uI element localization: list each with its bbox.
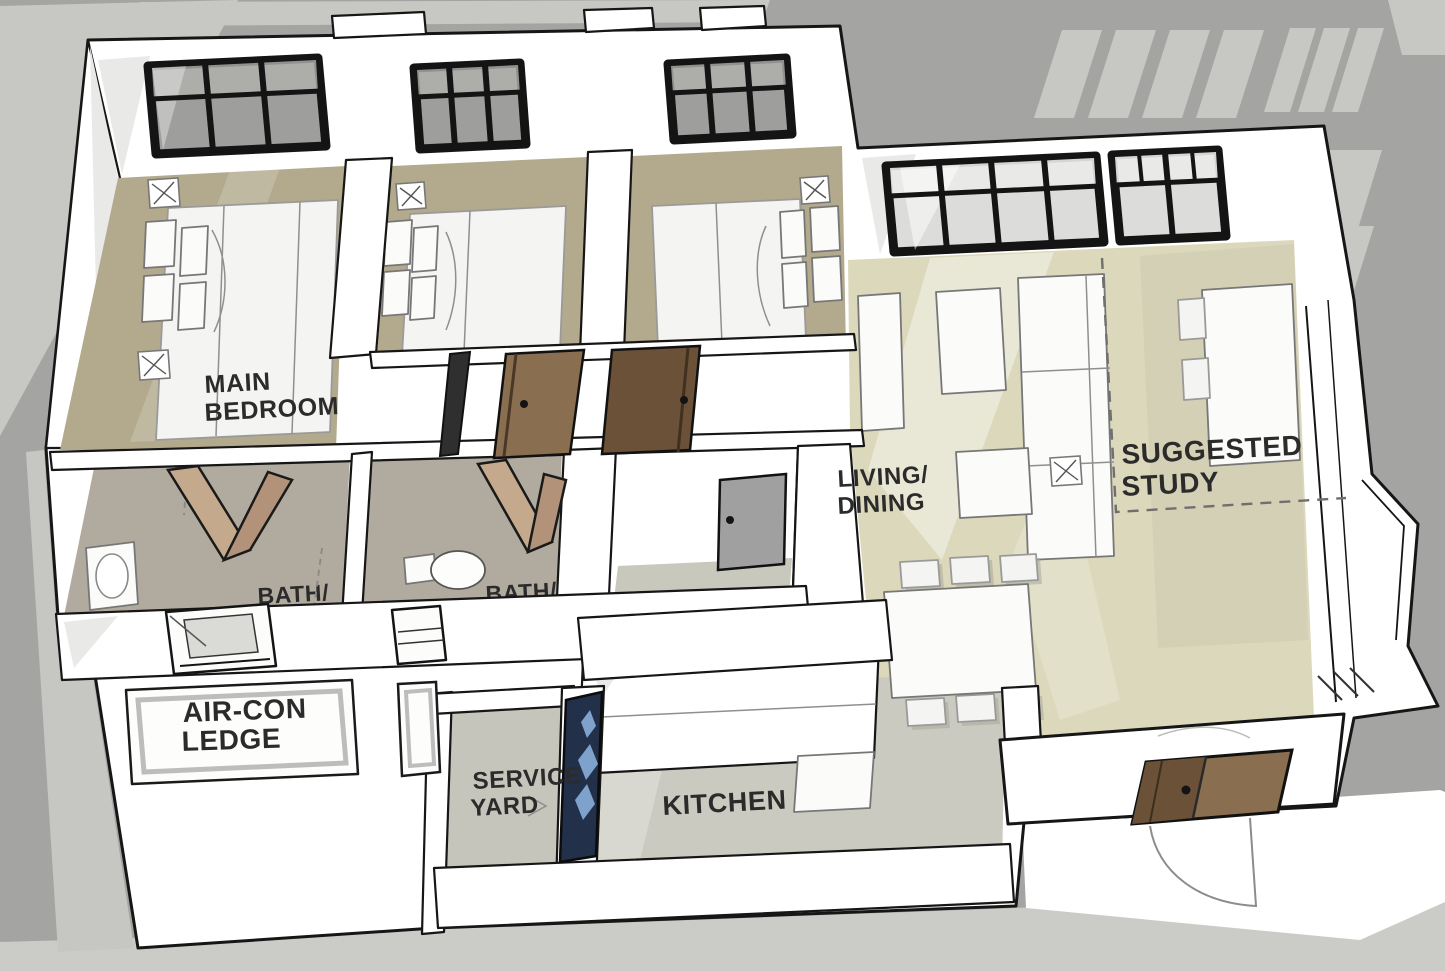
door-knob	[726, 516, 734, 524]
living-window-1	[886, 156, 1104, 252]
door-knob	[520, 400, 528, 408]
bedside-cabinet	[812, 256, 842, 302]
dining-chair	[900, 560, 940, 588]
desk-chair	[1178, 298, 1206, 340]
pillow	[410, 276, 436, 320]
bath-window-2	[392, 606, 446, 664]
dining-chair	[950, 556, 990, 584]
entrance-door	[1132, 750, 1292, 824]
floor-trap-icon	[138, 350, 170, 380]
bedside-cabinet	[382, 270, 410, 316]
bath-window-1	[166, 604, 276, 674]
dining-table	[884, 584, 1036, 698]
desk-chair	[1182, 358, 1210, 400]
bedroom-window-2	[414, 63, 526, 149]
bath-right-fixtures	[404, 551, 485, 589]
bedroom-door	[494, 350, 584, 458]
toilet	[431, 551, 485, 589]
floor-trap-icon	[1050, 456, 1082, 486]
floor-trap-icon	[396, 182, 426, 210]
aircon-ledge-opening	[398, 682, 440, 776]
bedside-cabinet	[144, 220, 176, 268]
dining-chair	[906, 698, 946, 726]
tv-console	[858, 293, 904, 431]
label-suggested-study: STUDY	[1121, 466, 1220, 502]
floor-plan-canvas: BATH/ BATH/	[0, 0, 1445, 971]
label-service-yard: YARD	[470, 791, 540, 822]
label-aircon-ledge: LEDGE	[181, 723, 281, 757]
dining-chair	[1000, 554, 1038, 582]
pillow	[178, 282, 206, 330]
bedroom-window-1	[148, 58, 326, 154]
pillow	[180, 226, 208, 276]
label-service-yard: SERVICE	[472, 762, 582, 795]
sofa	[1018, 274, 1114, 560]
dining-chair	[956, 694, 996, 722]
label-main-bedroom: MAIN	[204, 368, 272, 399]
pillow	[782, 262, 808, 308]
label-aircon-ledge: AIR-CON	[182, 693, 307, 728]
pillow	[412, 226, 438, 272]
floor-trap-icon	[148, 178, 180, 208]
coffee-table	[936, 288, 1006, 394]
kitchen-cabinet	[794, 752, 874, 812]
pillow	[780, 210, 806, 258]
bedside-cabinet	[142, 274, 174, 322]
floor-trap-icon	[800, 176, 830, 204]
living-window-2	[1112, 150, 1226, 241]
bedside-cabinet	[384, 220, 412, 266]
floor-plan-scene: BATH/ BATH/	[0, 0, 1445, 971]
door-knob	[680, 396, 688, 404]
armchair	[956, 448, 1032, 518]
label-living-dining: DINING	[837, 488, 926, 520]
bedroom-window-3	[668, 58, 792, 140]
door-knob	[1182, 786, 1191, 795]
bedside-cabinet	[810, 206, 840, 252]
